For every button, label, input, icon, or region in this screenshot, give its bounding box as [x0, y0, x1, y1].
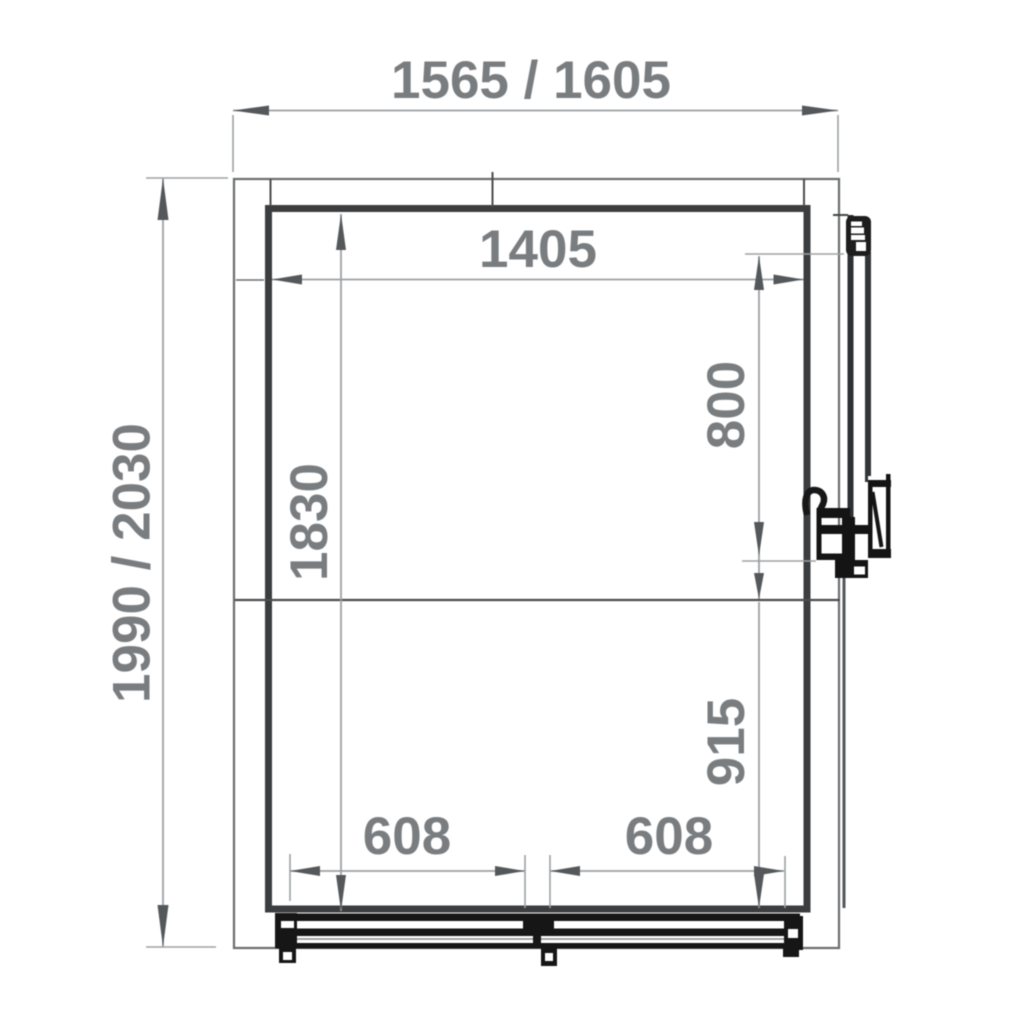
svg-text:1405: 1405: [479, 220, 597, 279]
svg-text:608: 608: [363, 807, 451, 866]
svg-text:800: 800: [697, 361, 756, 449]
svg-text:1990 / 2030: 1990 / 2030: [103, 423, 162, 703]
svg-text:1830: 1830: [280, 463, 339, 581]
svg-text:915: 915: [697, 698, 756, 786]
svg-text:1565 / 1605: 1565 / 1605: [391, 51, 671, 110]
svg-text:608: 608: [625, 807, 713, 866]
